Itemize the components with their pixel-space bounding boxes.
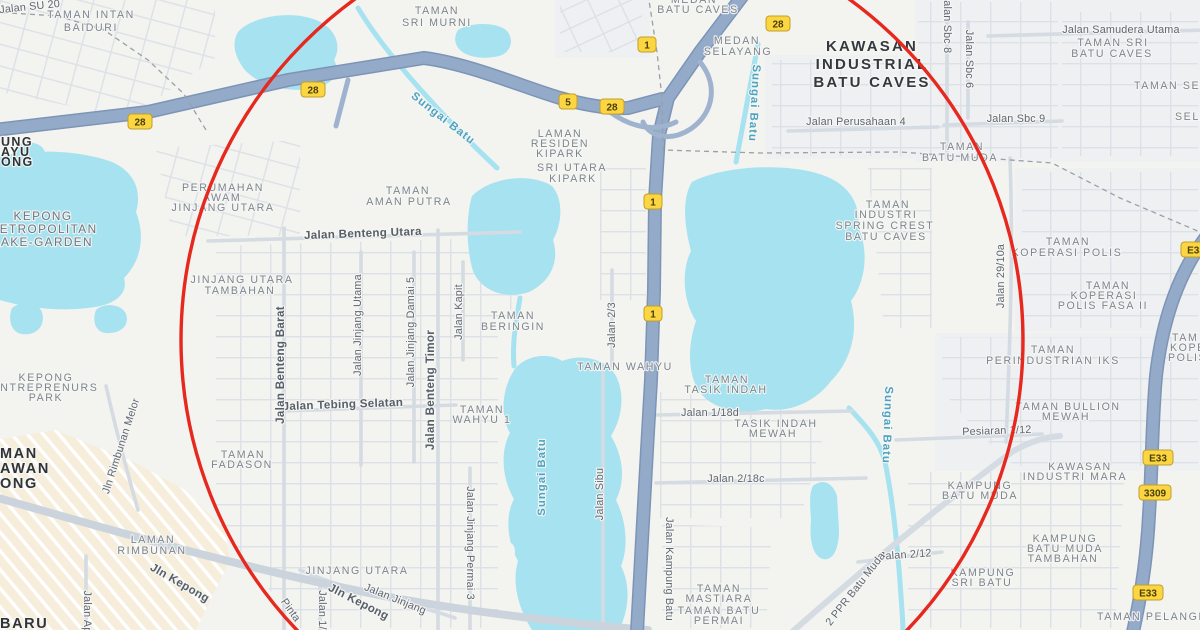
label-benteng-barat: Jalan Benteng Barat	[274, 306, 287, 424]
label-taman-wahyu: TAMAN WAHYU	[577, 361, 673, 373]
shield-28: 28	[600, 99, 624, 114]
shield-e33-text: E33	[1149, 454, 1167, 465]
label-kepong-metropolitan: METROPOLITAN	[0, 222, 98, 236]
label-taman-mastiara: MASTIARA	[686, 593, 753, 605]
label-taman-fadason: FADASON	[211, 459, 273, 471]
label-kawasan-industrial: INDUSTRIAL	[816, 56, 929, 73]
label-medan-batu-caves: BATU CAVES	[657, 4, 739, 16]
label-taman-sel-fragment: TAMAN SEL	[1134, 80, 1200, 92]
label-kg-bm-tambahan: TAMBAHAN	[1028, 553, 1099, 565]
label-taman-sri-batu-caves: BATU CAVES	[1071, 48, 1153, 60]
label-benteng-timor: Jalan Benteng Timor	[424, 330, 437, 450]
label-laman-residen: KIPARK	[536, 148, 584, 160]
shield-e33: E33	[1181, 242, 1200, 257]
shield-3309-text: 3309	[1144, 489, 1167, 500]
shield-3309: 3309	[1139, 485, 1171, 500]
shield-1: 1	[638, 37, 656, 52]
label-jalan-29-10a: Jalan 29/10a	[995, 244, 1007, 308]
label-jalan-kapit: Jalan Kapit	[453, 284, 465, 340]
label-aman-putra: AMAN PUTRA	[366, 196, 451, 208]
label-edge-fragment: MAN	[0, 446, 38, 462]
label-kepong-metropolitan: KEPONG	[14, 209, 73, 223]
label-sbc9: Jalan Sbc 9	[987, 113, 1046, 125]
label-entreprenurs-park: PARK	[29, 392, 63, 404]
label-sri-utara-kipark: KIPARK	[549, 173, 597, 185]
label-jinjang-utara: JINJANG UTARA	[305, 565, 408, 577]
shield-e33-text: E33	[1187, 246, 1200, 257]
label-kampung-sri-batu: SRI BATU	[952, 577, 1013, 589]
shield-e33: E33	[1133, 585, 1163, 600]
label-jalan-ap: Jalan Ap	[81, 590, 93, 630]
label-pesiaran-1-12: Pesiaran 1/12	[962, 424, 1032, 438]
lake-island	[505, 543, 515, 561]
label-sbc8: Jalan Sbc 8	[941, 0, 953, 53]
label-tasik-indah-mewah: MEWAH	[749, 428, 797, 440]
label-laman-rimbunan: RIMBUNAN	[117, 545, 186, 557]
shield-28: 28	[766, 16, 790, 31]
label-jalan-1-18d: Jalan 1/18d	[681, 407, 739, 419]
label-koperasi-fragment: POLIS F	[1168, 352, 1200, 364]
label-bullion-mewah: MEWAH	[1042, 411, 1090, 423]
label-jinjang-utara-tambahan: TAMBAHAN	[205, 285, 276, 297]
label-edge-fragment: ONG	[1, 155, 34, 169]
label-taman-batu-muda: BATU MUDA	[922, 152, 998, 164]
label-sela-fragment: SELA	[1175, 111, 1200, 123]
label-jalan-sibu: Jalan Sibu	[594, 468, 606, 520]
shield-28-text: 28	[134, 118, 146, 129]
label-industri-mara: INDUSTRI MARA	[1023, 471, 1127, 483]
shield-1: 1	[644, 306, 662, 321]
label-koperasi-polis-fasa2: POLIS FASA II	[1058, 300, 1148, 312]
label-kampung-batu: Jalan Kampung Batu	[663, 517, 675, 621]
label-taman-pelangi: TAMAN PELANGI	[1097, 611, 1200, 623]
label-kepong-metropolitan: LAKE-GARDEN	[0, 235, 93, 249]
map-viewport[interactable]: 28 28 5 28 28 1 1 1 E33 E33	[0, 0, 1200, 630]
shield-1: 1	[644, 194, 662, 209]
label-tasik-indah: TASIK INDAH	[684, 384, 767, 396]
shield-28-text: 28	[606, 103, 618, 114]
label-kampung-batu-muda: BATU MUDA	[942, 490, 1018, 502]
label-jinjang-permai-3: Jalan Jinjang Permai 3	[464, 486, 476, 600]
shield-5: 5	[559, 94, 577, 109]
label-taman-intan: BAIDURI	[64, 22, 118, 34]
label-medan-selayang: SELAYANG	[704, 46, 772, 58]
label-jinjang-damai-5: Jalan Jinjang Damai 5	[405, 277, 417, 387]
label-jalan-2-3: Jalan 2/3	[606, 302, 618, 348]
label-edge-fragment: AWAN	[0, 461, 50, 477]
label-batu-permai: PERMAI	[694, 615, 744, 627]
label-jinjang-utama: Jalan Jinjang Utama	[352, 274, 364, 376]
label-sri-murni: TAMAN	[415, 5, 459, 17]
label-jalan-2-18c: Jalan 2/18c	[707, 473, 765, 485]
label-taman-intan: TAMAN INTAN	[47, 9, 135, 21]
label-koperasi-polis: KOPERASI POLIS	[1012, 247, 1123, 259]
shield-5-text: 5	[565, 98, 571, 109]
label-jalan-1: Jalan 1/	[316, 590, 328, 629]
label-sri-murni: SRI MURNI	[402, 17, 472, 29]
map-canvas[interactable]: 28 28 5 28 28 1 1 1 E33 E33	[0, 0, 1200, 630]
shield-28-text: 28	[307, 86, 319, 97]
shield-e33-text: E33	[1139, 589, 1157, 600]
shield-1-text: 1	[650, 310, 656, 321]
shield-28: 28	[128, 114, 152, 129]
label-edge-fragment: ONG	[0, 476, 38, 492]
label-perindustrian-iks: PERINDUSTRIAN IKS	[986, 355, 1120, 367]
label-taman-wahyu-1: WAHYU 1	[452, 414, 511, 426]
label-samudera-utama: Jalan Samudera Utama	[1062, 24, 1179, 36]
shield-1-text: 1	[650, 198, 656, 209]
label-sungai-batu: Sungai Batu	[536, 438, 548, 515]
shield-e33: E33	[1143, 450, 1173, 465]
label-taman-beringin: BERINGIN	[481, 321, 545, 333]
label-kawasan-industrial: BATU CAVES	[813, 74, 930, 91]
shield-1-text: 1	[644, 41, 650, 52]
label-perumahan-awam: JINJANG UTARA	[171, 202, 274, 214]
label-perusahaan-4: Jalan Perusahaan 4	[806, 116, 906, 128]
label-edge-fragment: BARU	[0, 616, 48, 630]
shield-28-text: 28	[772, 20, 784, 31]
label-spring-crest: BATU CAVES	[845, 231, 927, 243]
label-sbc6: Jalan Sbc 6	[963, 30, 975, 89]
shield-28: 28	[301, 82, 325, 97]
